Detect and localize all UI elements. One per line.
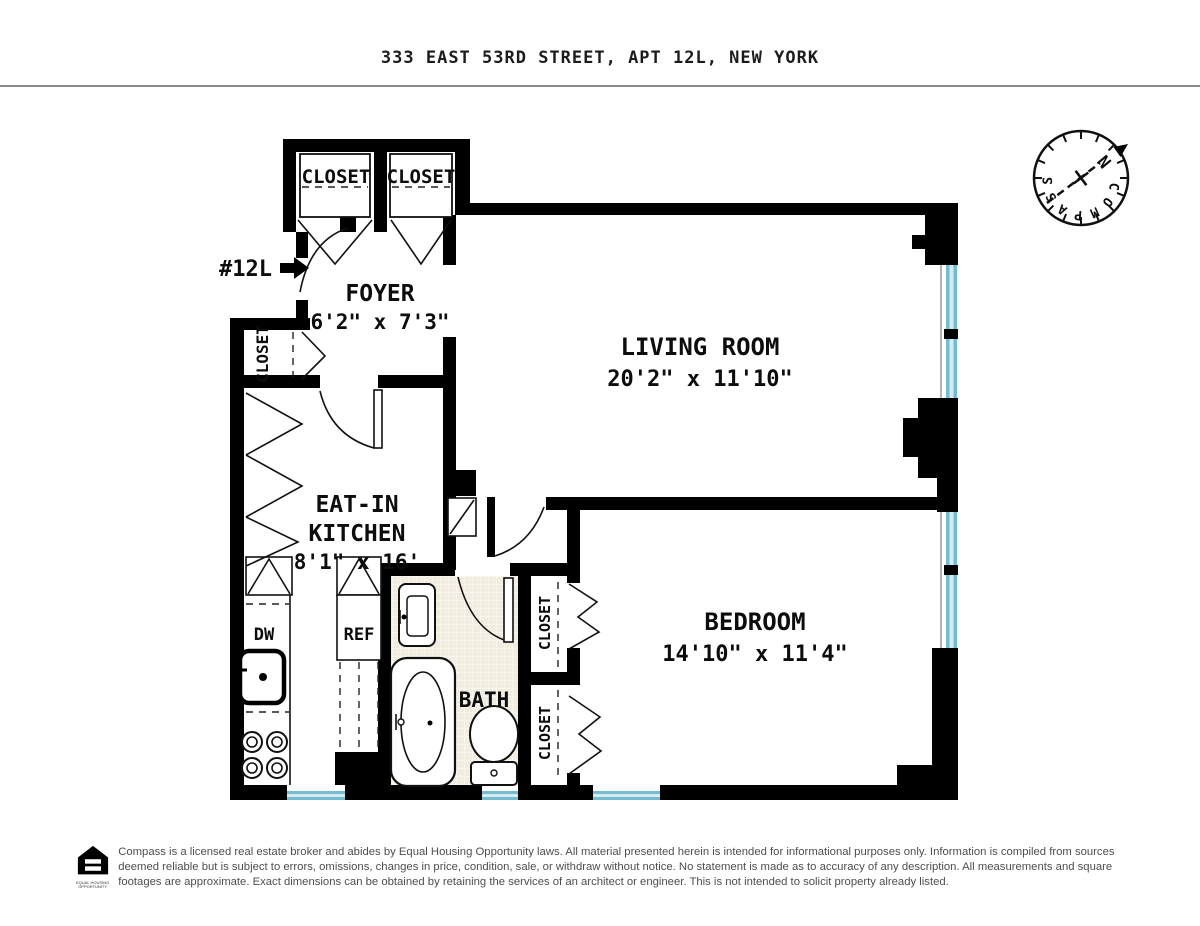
compass-tick — [1063, 135, 1066, 142]
kitchen-label-line1: EAT-IN — [315, 492, 398, 518]
bedroom-label: BEDROOM — [704, 608, 805, 636]
compass-tick — [1038, 160, 1045, 163]
compass: COMPASS N — [1034, 131, 1128, 225]
window — [937, 512, 958, 648]
kitchen-door-arc — [320, 391, 374, 448]
wall — [932, 648, 958, 768]
pantry-fold-doors — [246, 393, 302, 566]
wall — [944, 329, 958, 339]
window — [287, 786, 345, 802]
stove-fixture — [242, 732, 287, 778]
wall — [903, 418, 918, 457]
closet-fold-door — [302, 332, 325, 379]
wall — [518, 563, 580, 576]
wall — [487, 497, 495, 557]
compass-letter: P — [1073, 207, 1082, 223]
wall — [456, 470, 476, 496]
living-room-label: LIVING ROOM — [621, 333, 780, 361]
cabinet — [448, 498, 476, 536]
wall — [296, 375, 320, 388]
north-label: N — [1092, 152, 1114, 173]
wall — [443, 337, 456, 378]
compass-tick — [1117, 160, 1124, 163]
wall — [296, 300, 308, 318]
wall — [345, 785, 482, 800]
compass-letter: M — [1087, 203, 1100, 220]
foyer-dimensions: 6'2" x 7'3" — [310, 310, 449, 334]
wall — [567, 773, 580, 785]
refrigerator-label: REF — [344, 625, 375, 645]
closet-label: CLOSET — [302, 166, 371, 188]
compass-letter: S — [1041, 177, 1056, 186]
compass-letter: S — [1044, 190, 1061, 204]
compass-tick — [1096, 135, 1099, 142]
compass-letter: O — [1099, 194, 1116, 209]
wall — [912, 235, 927, 249]
closet-label: CLOSET — [253, 325, 272, 383]
window — [593, 786, 660, 802]
compass-tick — [1048, 145, 1053, 150]
wall — [335, 752, 381, 785]
equal-housing-logo: EQUAL HOUSING OPPORTUNITY — [76, 845, 109, 890]
sink-drain — [259, 673, 267, 681]
equal-housing-caption: EQUAL HOUSING OPPORTUNITY — [76, 881, 109, 890]
closet-fold-door — [298, 220, 372, 264]
footer: EQUAL HOUSING OPPORTUNITY Compass is a l… — [76, 845, 1136, 890]
wall — [443, 388, 456, 570]
entry-marker: #12L — [219, 257, 309, 282]
wall — [230, 318, 244, 800]
wall — [925, 203, 958, 265]
wall — [374, 152, 387, 232]
walls — [230, 139, 958, 800]
compass-letter: A — [1055, 200, 1070, 217]
wall — [518, 785, 593, 800]
disclaimer-text: Compass is a licensed real estate broker… — [118, 845, 1136, 890]
closet-fold-door — [569, 584, 599, 649]
wall — [660, 785, 958, 800]
refrigerator — [337, 595, 381, 750]
wall — [296, 232, 308, 258]
bedroom-dimensions: 14'10" x 11'4" — [662, 642, 847, 667]
equal-housing-logo-icon — [77, 845, 109, 877]
closet-label: CLOSET — [387, 166, 456, 188]
bath-sink-fixture — [399, 584, 435, 646]
bath-label: BATH — [459, 688, 510, 712]
compass-tick — [1038, 193, 1045, 196]
entry-label: #12L — [219, 257, 272, 282]
kitchen-door-leaf — [374, 390, 382, 448]
wall — [944, 565, 958, 575]
toilet-fixture — [470, 706, 518, 785]
compass-tick — [1117, 193, 1124, 196]
wall — [546, 497, 940, 510]
wall — [283, 139, 470, 152]
bathtub-fixture — [391, 658, 455, 786]
bedroom-door-arc — [495, 507, 544, 556]
floor-plan: CLOSET CLOSET FOYER 6'2" x 7'3" CLOSET L… — [0, 0, 1200, 926]
living-room-dimensions: 20'2" x 11'10" — [607, 367, 792, 392]
closet-label: CLOSET — [536, 596, 554, 650]
floor-plan-page: 333 EAST 53RD STREET, APT 12L, NEW YORK — [0, 0, 1200, 926]
compass-letter: C — [1105, 182, 1121, 192]
closet-label: CLOSET — [536, 706, 554, 760]
closet-fold-door — [569, 696, 601, 774]
foyer-label: FOYER — [345, 281, 414, 307]
compass-tick — [1109, 145, 1114, 150]
kitchen-label-line2: KITCHEN — [309, 521, 406, 547]
wall — [937, 478, 958, 512]
wall — [510, 563, 518, 576]
dishwasher-label: DW — [254, 625, 275, 645]
wall — [918, 398, 958, 478]
wall — [518, 672, 580, 685]
wall — [455, 203, 925, 215]
compass-tick — [1048, 206, 1053, 211]
closet-fold-door — [391, 220, 451, 264]
wall — [283, 139, 296, 232]
bath-door-leaf — [504, 578, 513, 642]
wall — [230, 785, 287, 800]
window — [482, 786, 518, 802]
kitchen-dimensions: 8'1" x 16' — [294, 550, 420, 574]
